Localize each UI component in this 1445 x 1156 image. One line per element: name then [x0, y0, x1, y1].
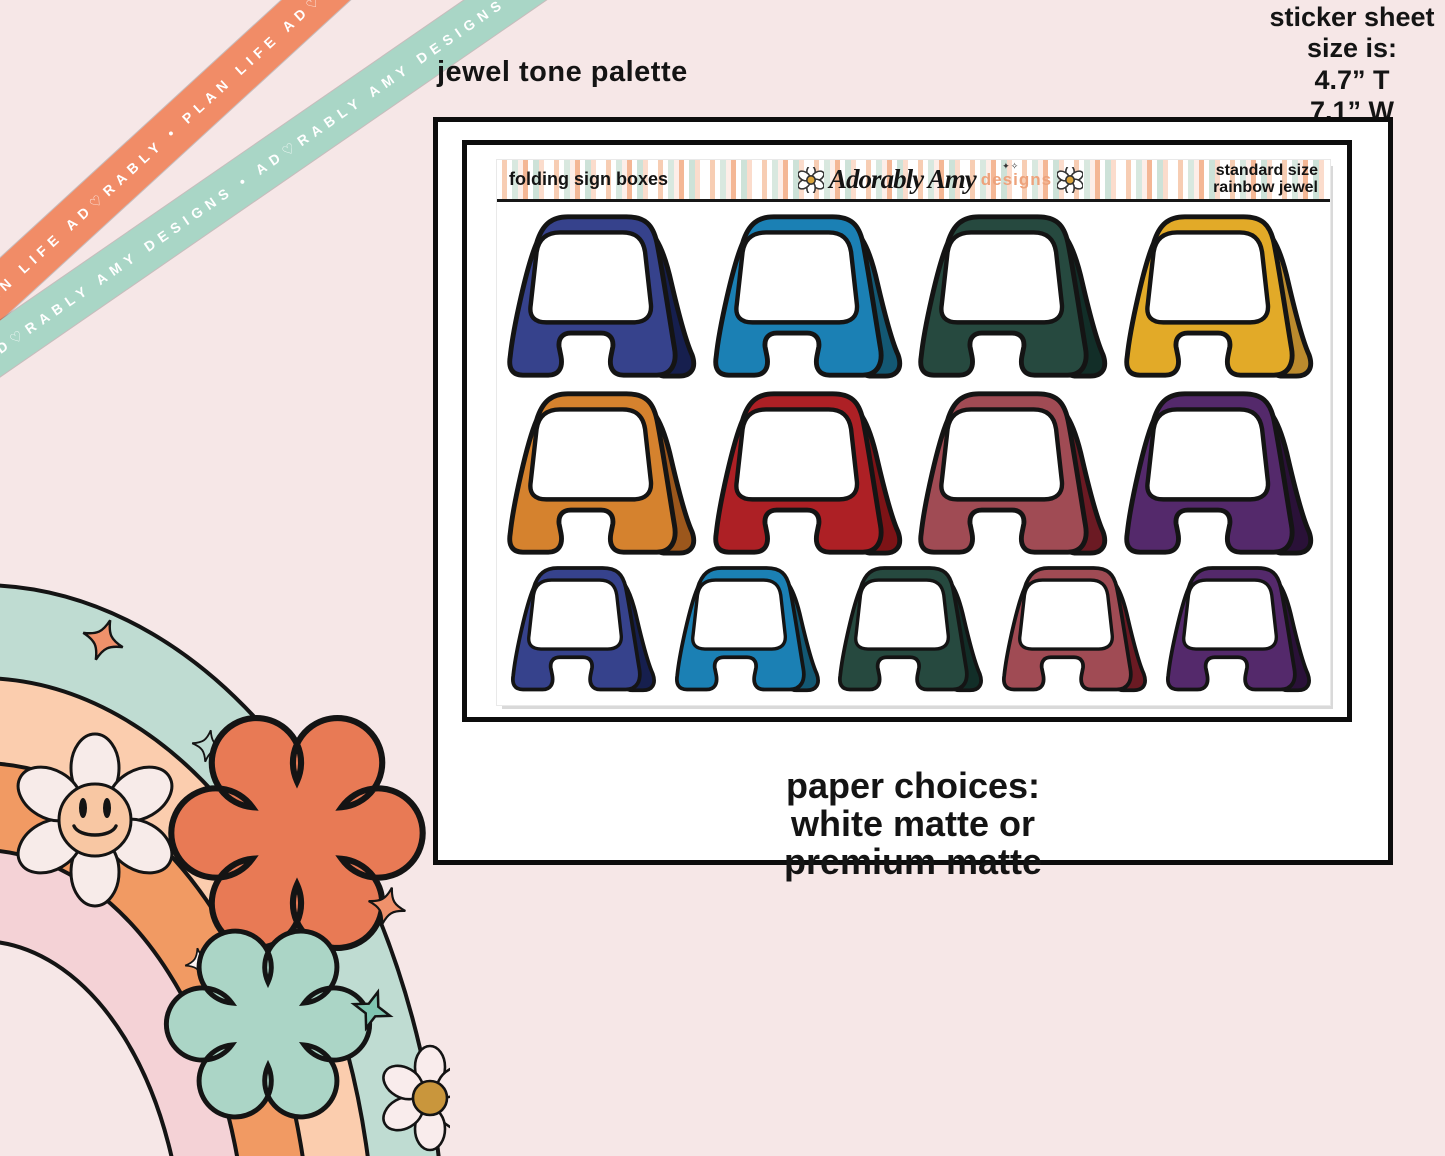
brand-script-text: Adorably Amy: [829, 164, 976, 195]
folding-sign-sticker-navy: [507, 209, 703, 381]
folding-sign-sticker-purple: [1124, 386, 1320, 558]
daisy-icon: [1057, 167, 1083, 193]
folding-sign-sticker-berry: [1002, 562, 1152, 694]
sticker-row: [497, 386, 1330, 558]
sheet-title: folding sign boxes: [509, 169, 668, 190]
folding-sign-sticker-purple: [1166, 562, 1316, 694]
paper-note: paper choices: white matte or premium ma…: [438, 767, 1388, 880]
paper-note-line: paper choices:: [438, 767, 1388, 805]
folding-sign-sticker-red: [713, 386, 909, 558]
size-note-line: 4.7” T: [1252, 65, 1445, 96]
paper-note-line: premium matte: [438, 843, 1388, 881]
folding-sign-sticker-green: [838, 562, 988, 694]
size-note-line: size is:: [1252, 33, 1445, 64]
folding-sign-sticker-orange: [507, 386, 703, 558]
folding-sign-sticker-navy: [511, 562, 661, 694]
palette-label: jewel tone palette: [437, 56, 688, 89]
folding-sign-sticker-berry: [918, 386, 1114, 558]
folding-sign-sticker-green: [918, 209, 1114, 381]
sticker-row: [497, 562, 1330, 694]
sheet-frame: folding sign boxes Adorably Amy ✦✧design…: [462, 140, 1352, 722]
size-note-line: sticker sheet: [1252, 2, 1445, 33]
brand-logo: Adorably Amy ✦✧designs: [798, 164, 1083, 195]
crown-sparkles-icon: ✦✧: [1002, 161, 1019, 172]
sheet-variant-label: standard size rainbow jewel: [1213, 163, 1318, 197]
paper-note-line: white matte or: [438, 805, 1388, 843]
sticker-sheet: folding sign boxes Adorably Amy ✦✧design…: [497, 160, 1330, 705]
rainbow-decoration: [0, 556, 450, 1156]
product-listing-image: { "background_color": "#f6e7e7", "ribbon…: [0, 0, 1445, 1156]
daisy-icon: [798, 167, 824, 193]
folding-sign-sticker-gold: [1124, 209, 1320, 381]
folding-sign-sticker-blue: [675, 562, 825, 694]
brand-sub-text: ✦✧designs: [981, 170, 1052, 190]
size-note: sticker sheet size is: 4.7” T 7.1” W: [1252, 2, 1445, 127]
folding-sign-sticker-blue: [713, 209, 909, 381]
sticker-row: [497, 209, 1330, 381]
sticker-grid: [497, 202, 1330, 705]
sheet-header: folding sign boxes Adorably Amy ✦✧design…: [497, 160, 1330, 202]
presentation-box: folding sign boxes Adorably Amy ✦✧design…: [433, 117, 1393, 865]
